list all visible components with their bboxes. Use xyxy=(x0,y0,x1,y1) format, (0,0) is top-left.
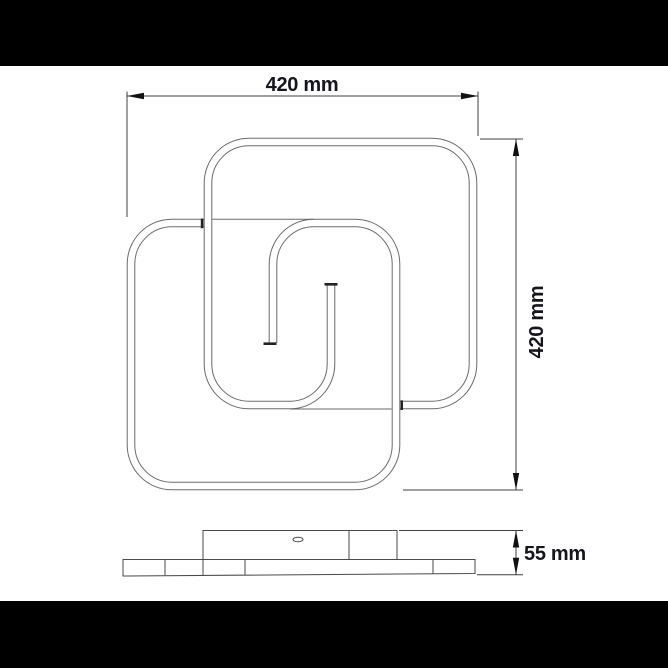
square-b-tube-outline xyxy=(131,223,396,486)
technical-drawing-page: 420 mm 420 mm 55 mm xyxy=(0,0,668,668)
drawing-canvas: 420 mm 420 mm 55 mm xyxy=(0,0,668,668)
letterbox-top xyxy=(0,0,668,66)
side-profile-bar xyxy=(123,560,475,577)
square-a-tube-outline xyxy=(208,142,473,405)
mounting-canopy xyxy=(203,531,397,560)
height-dimension-label: 420 mm xyxy=(526,286,548,359)
tube-end-cap-at-right-crossing xyxy=(400,400,403,410)
letterbox-bottom xyxy=(0,601,668,668)
tube-end-cap-center-lower xyxy=(264,342,277,345)
tube-end-cap-center-upper xyxy=(325,283,338,286)
width-arrow-left xyxy=(127,93,144,99)
width-dimension-label: 420 mm xyxy=(266,74,339,96)
height-arrow-down xyxy=(513,473,519,490)
tube-end-cap-at-left-crossing xyxy=(201,219,204,229)
square-b-tube-inner-white xyxy=(131,223,396,486)
square-a-tube-inner-white xyxy=(208,142,473,405)
depth-arrow-down xyxy=(513,558,519,575)
width-arrow-right xyxy=(461,93,478,99)
depth-arrow-up xyxy=(513,531,519,548)
depth-dimension-label: 55 mm xyxy=(524,543,586,565)
height-arrow-up xyxy=(513,139,519,156)
fixture-top-view xyxy=(131,142,473,486)
fixture-side-view xyxy=(123,531,475,577)
